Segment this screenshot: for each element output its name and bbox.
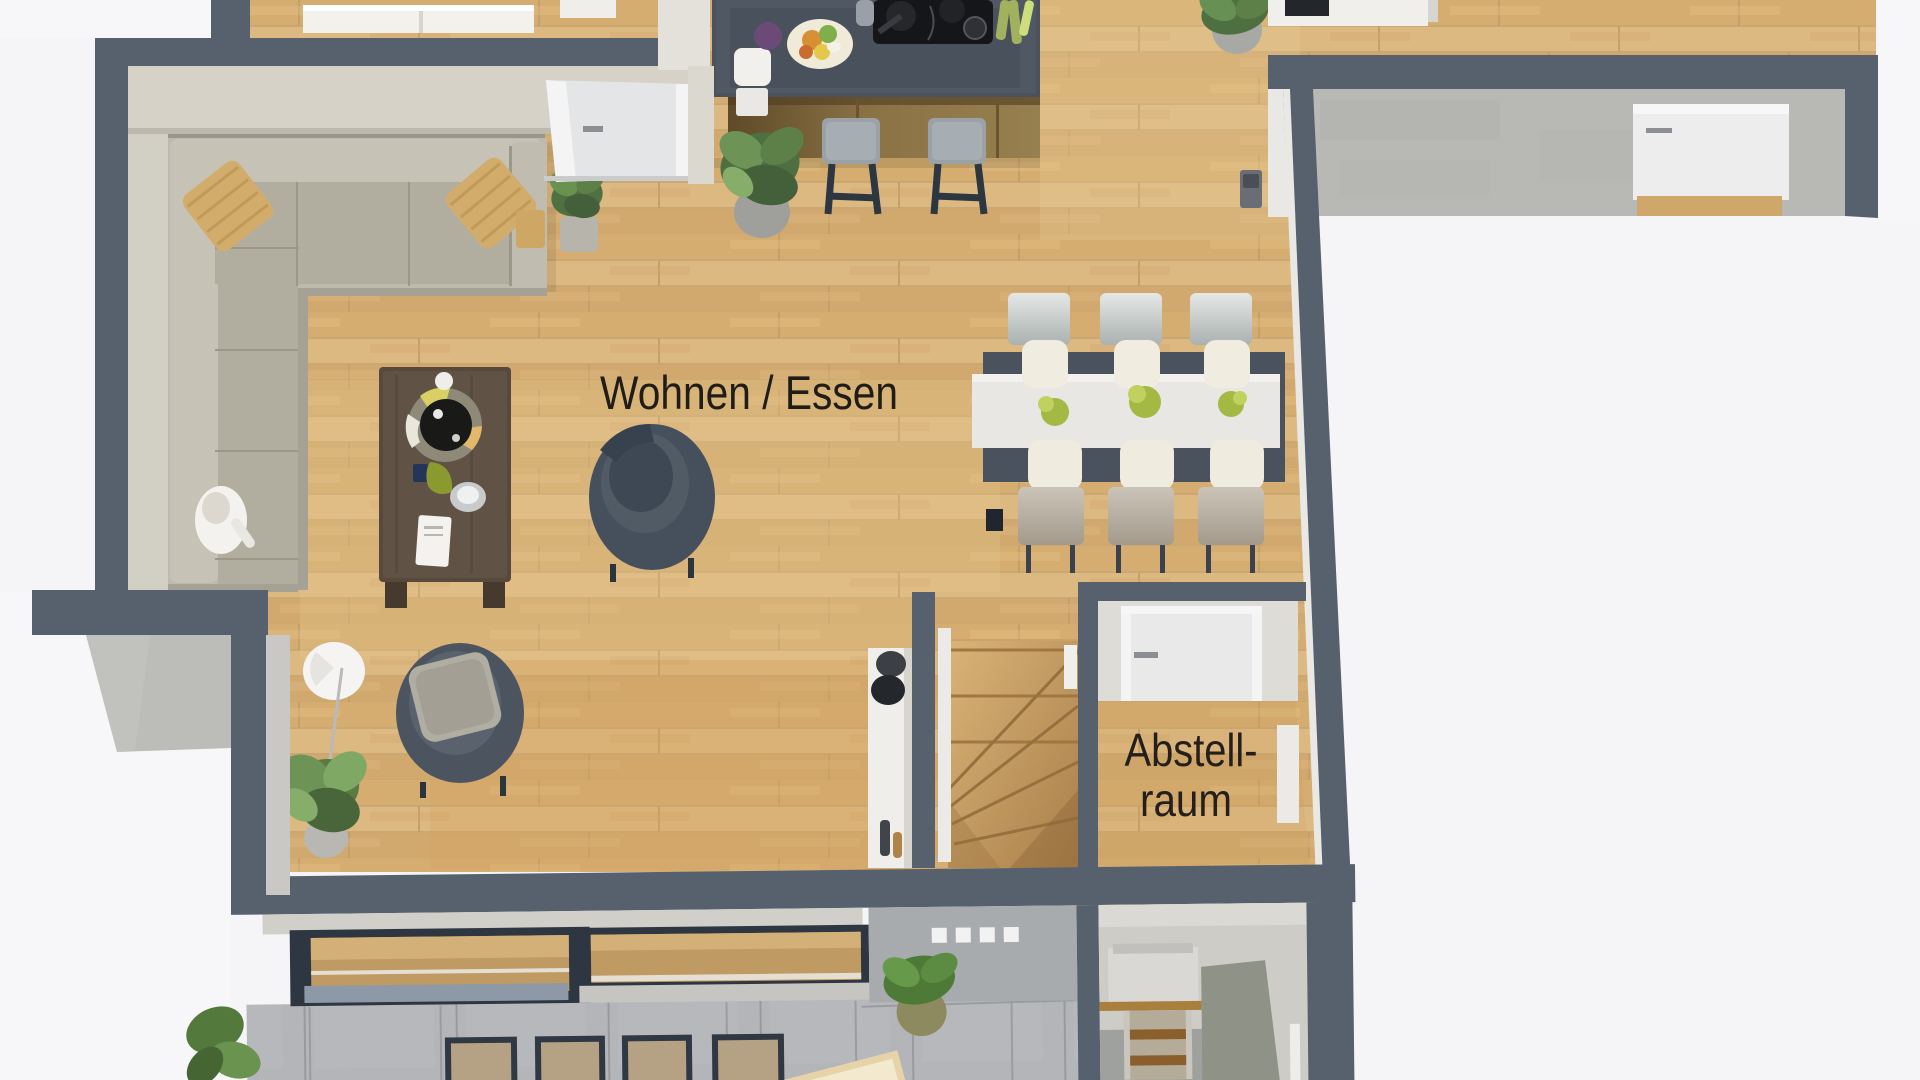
svg-text:Wohnen / Essen: Wohnen / Essen [600,366,898,419]
svg-text:raum: raum [1140,774,1232,826]
svg-text:Abstell-: Abstell- [1125,724,1258,776]
